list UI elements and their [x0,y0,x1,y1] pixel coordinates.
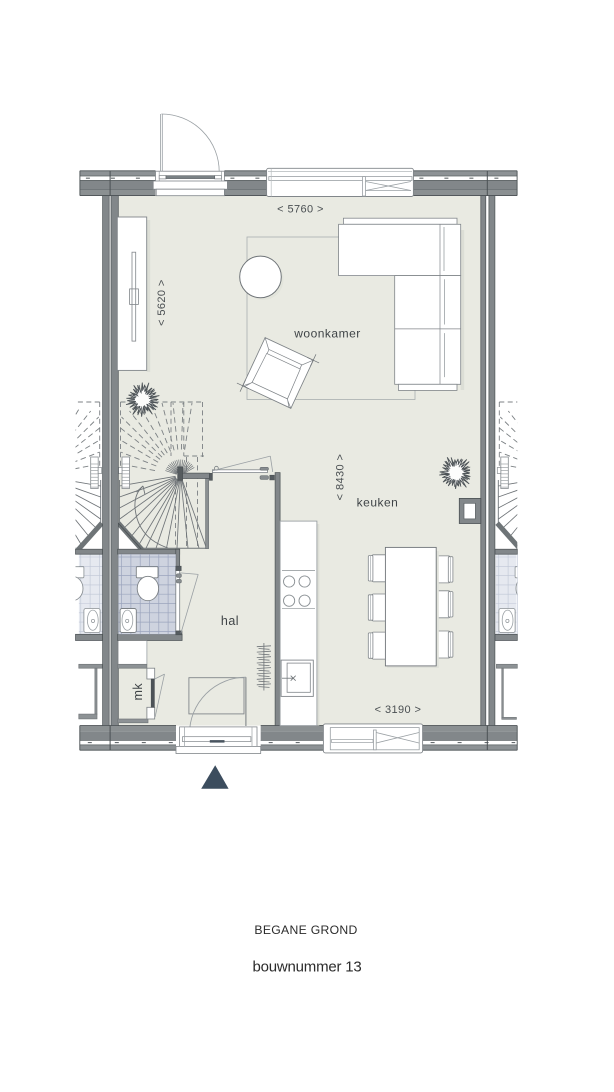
svg-text:bouwnummer 13: bouwnummer 13 [252,959,361,976]
svg-text:BEGANE GROND: BEGANE GROND [254,923,357,937]
svg-text:mk: mk [131,683,145,701]
svg-text:< 5760 >: < 5760 > [277,204,324,216]
svg-text:< 8430 >: < 8430 > [335,454,347,501]
svg-text:hal: hal [221,614,239,628]
svg-text:keuken: keuken [357,496,399,510]
svg-text:< 5620 >: < 5620 > [156,279,168,326]
svg-text:< 3190 >: < 3190 > [375,704,422,716]
svg-text:woonkamer: woonkamer [293,326,361,340]
